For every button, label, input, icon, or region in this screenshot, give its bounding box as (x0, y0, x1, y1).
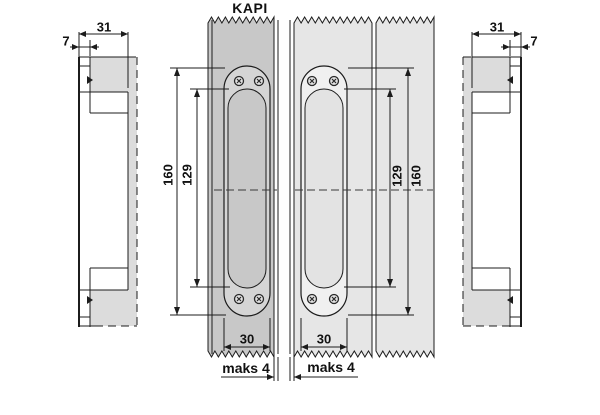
dim-label-maks4-door2: maks 4 (307, 360, 354, 374)
flush-pull-profile (79, 57, 128, 327)
flush-pull-profile (472, 57, 521, 327)
screw-icon (235, 77, 244, 86)
door-edge-line (79, 57, 128, 326)
door-panel-2-view (290, 17, 434, 381)
door-material (463, 290, 510, 326)
screw-icon (255, 77, 264, 86)
dim-label-7-right: 7 (530, 35, 537, 48)
door-material (463, 57, 510, 92)
dim-label-129-door1: 129 (181, 164, 194, 186)
door-material (128, 92, 137, 290)
screw-icon (308, 77, 317, 86)
door-material (90, 290, 137, 326)
dim-label-160-door2: 160 (410, 165, 423, 187)
dim-label-7-left: 7 (62, 35, 69, 48)
dim-label-30-door1: 30 (240, 333, 254, 346)
right-section-view (463, 31, 530, 327)
screw-icon (255, 295, 264, 304)
dim-label-maks4-door1: maks 4 (222, 361, 269, 375)
technical-drawing: KAPI 31 7 31 7 160 129 30 maks 4 129 160… (0, 0, 600, 415)
dim-label-160-door1: 160 (162, 164, 175, 186)
door-edge-line (472, 57, 521, 326)
drawing-canvas (0, 0, 600, 415)
dim-label-31-right: 31 (490, 21, 504, 34)
flush-pull-recess (228, 89, 266, 288)
dim-arrow (294, 374, 301, 380)
dim-label-30-door2: 30 (317, 333, 331, 346)
flush-pull-recess (305, 89, 343, 288)
door-material (90, 57, 137, 92)
screw-icon (235, 295, 244, 304)
screw-icon (330, 295, 339, 304)
left-section-view (70, 31, 137, 327)
door-material (463, 92, 472, 290)
dim-label-129-door2: 129 (391, 165, 404, 187)
dim-label-31-left: 31 (97, 21, 111, 34)
drawing-title: KAPI (232, 1, 267, 15)
screw-icon (308, 295, 317, 304)
screw-icon (330, 77, 339, 86)
door-panel-1-view (170, 17, 278, 381)
